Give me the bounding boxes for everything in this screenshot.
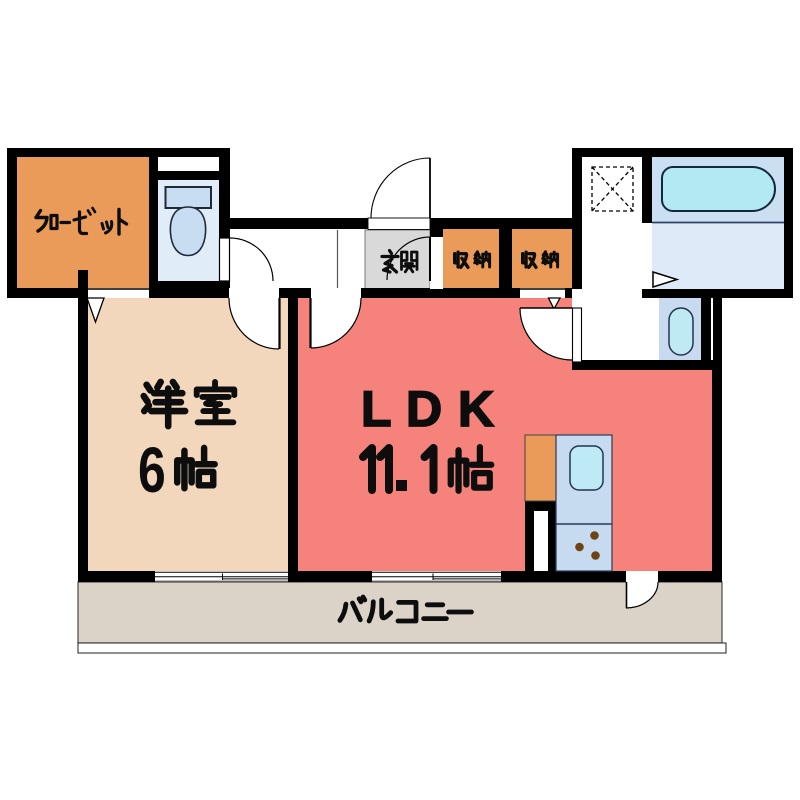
svg-text:L: L [361, 381, 392, 437]
svg-text:K: K [458, 381, 494, 437]
svg-text:6: 6 [138, 435, 166, 506]
svg-text:D: D [406, 381, 442, 437]
